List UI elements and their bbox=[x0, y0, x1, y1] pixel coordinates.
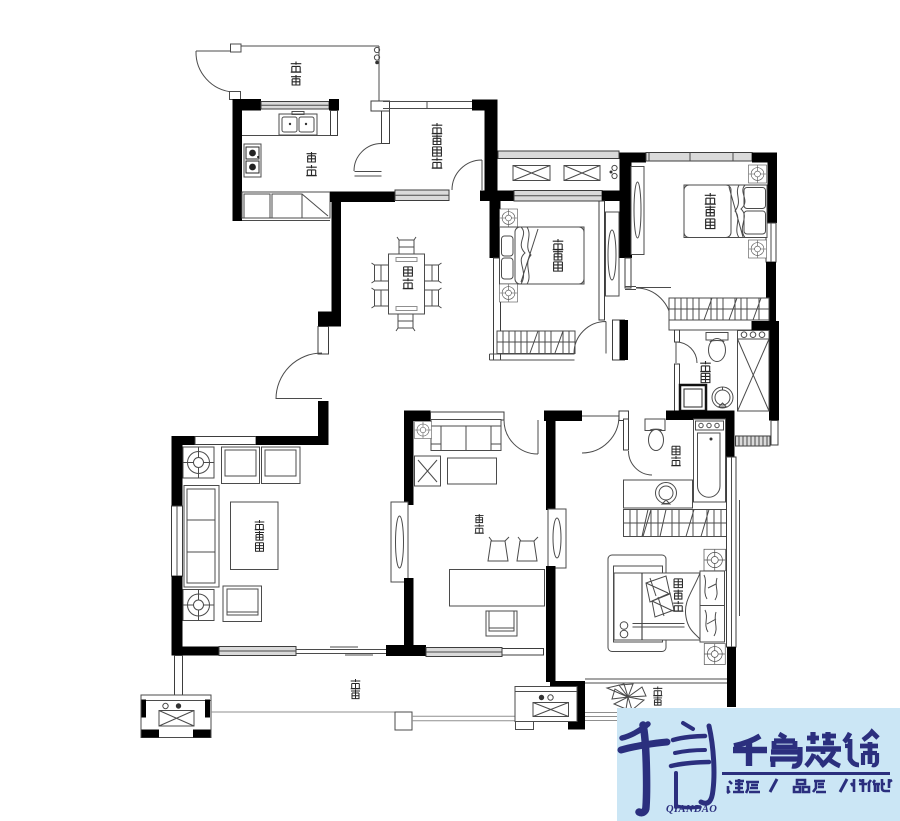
svg-text:QIANDAO: QIANDAO bbox=[666, 804, 717, 815]
